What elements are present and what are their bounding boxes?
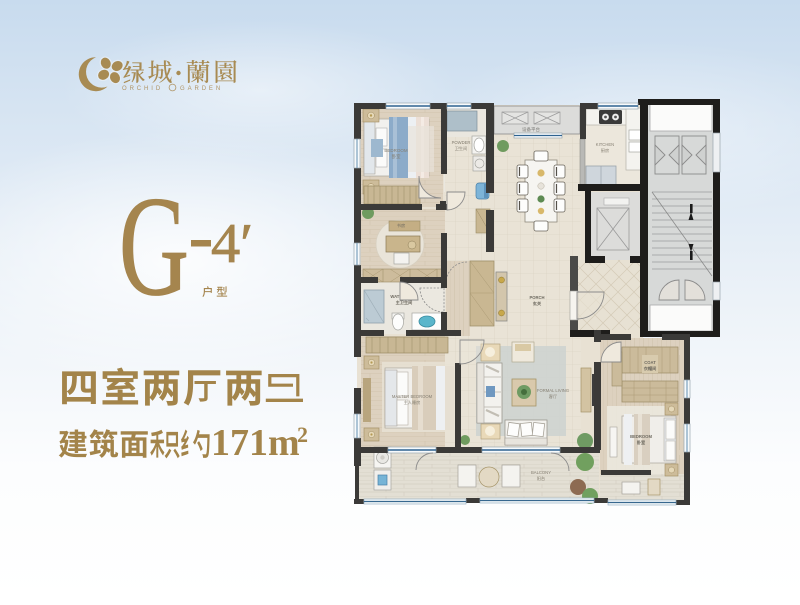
svg-text:FORMAL LIVING: FORMAL LIVING [537,388,569,393]
svg-text:卧室: 卧室 [637,439,646,446]
svg-text:KITCHEN: KITCHEN [596,142,614,147]
svg-text:GARDEN: GARDEN [180,86,223,92]
svg-text:BALCONY: BALCONY [531,470,551,475]
svg-text:MASTER BEDROOM: MASTER BEDROOM [392,394,433,399]
svg-text:BEDROOM: BEDROOM [384,148,408,153]
svg-text:衣帽间: 衣帽间 [644,365,657,372]
svg-text:4′: 4′ [211,213,253,275]
svg-text:阳台: 阳台 [537,475,545,482]
svg-text:主人睡房: 主人睡房 [404,399,421,406]
svg-text:COAT: COAT [644,360,656,365]
svg-text:BEDROOM: BEDROOM [630,434,652,439]
svg-text:G: G [119,167,189,325]
svg-text:卧室: 卧室 [392,153,401,160]
svg-text:厨房: 厨房 [601,147,609,154]
svg-text:卫生间: 卫生间 [455,145,468,152]
svg-text:客厅: 客厅 [549,393,557,400]
svg-text:POWDER: POWDER [452,140,471,145]
svg-text:设备平台: 设备平台 [522,126,540,133]
svg-text:PORCH: PORCH [529,295,544,300]
svg-text:ORCHID: ORCHID [122,86,163,92]
svg-text:171m: 171m [211,422,300,464]
svg-text:书房: 书房 [397,222,405,229]
svg-text:玄关: 玄关 [533,300,542,307]
svg-text:2: 2 [297,422,308,447]
